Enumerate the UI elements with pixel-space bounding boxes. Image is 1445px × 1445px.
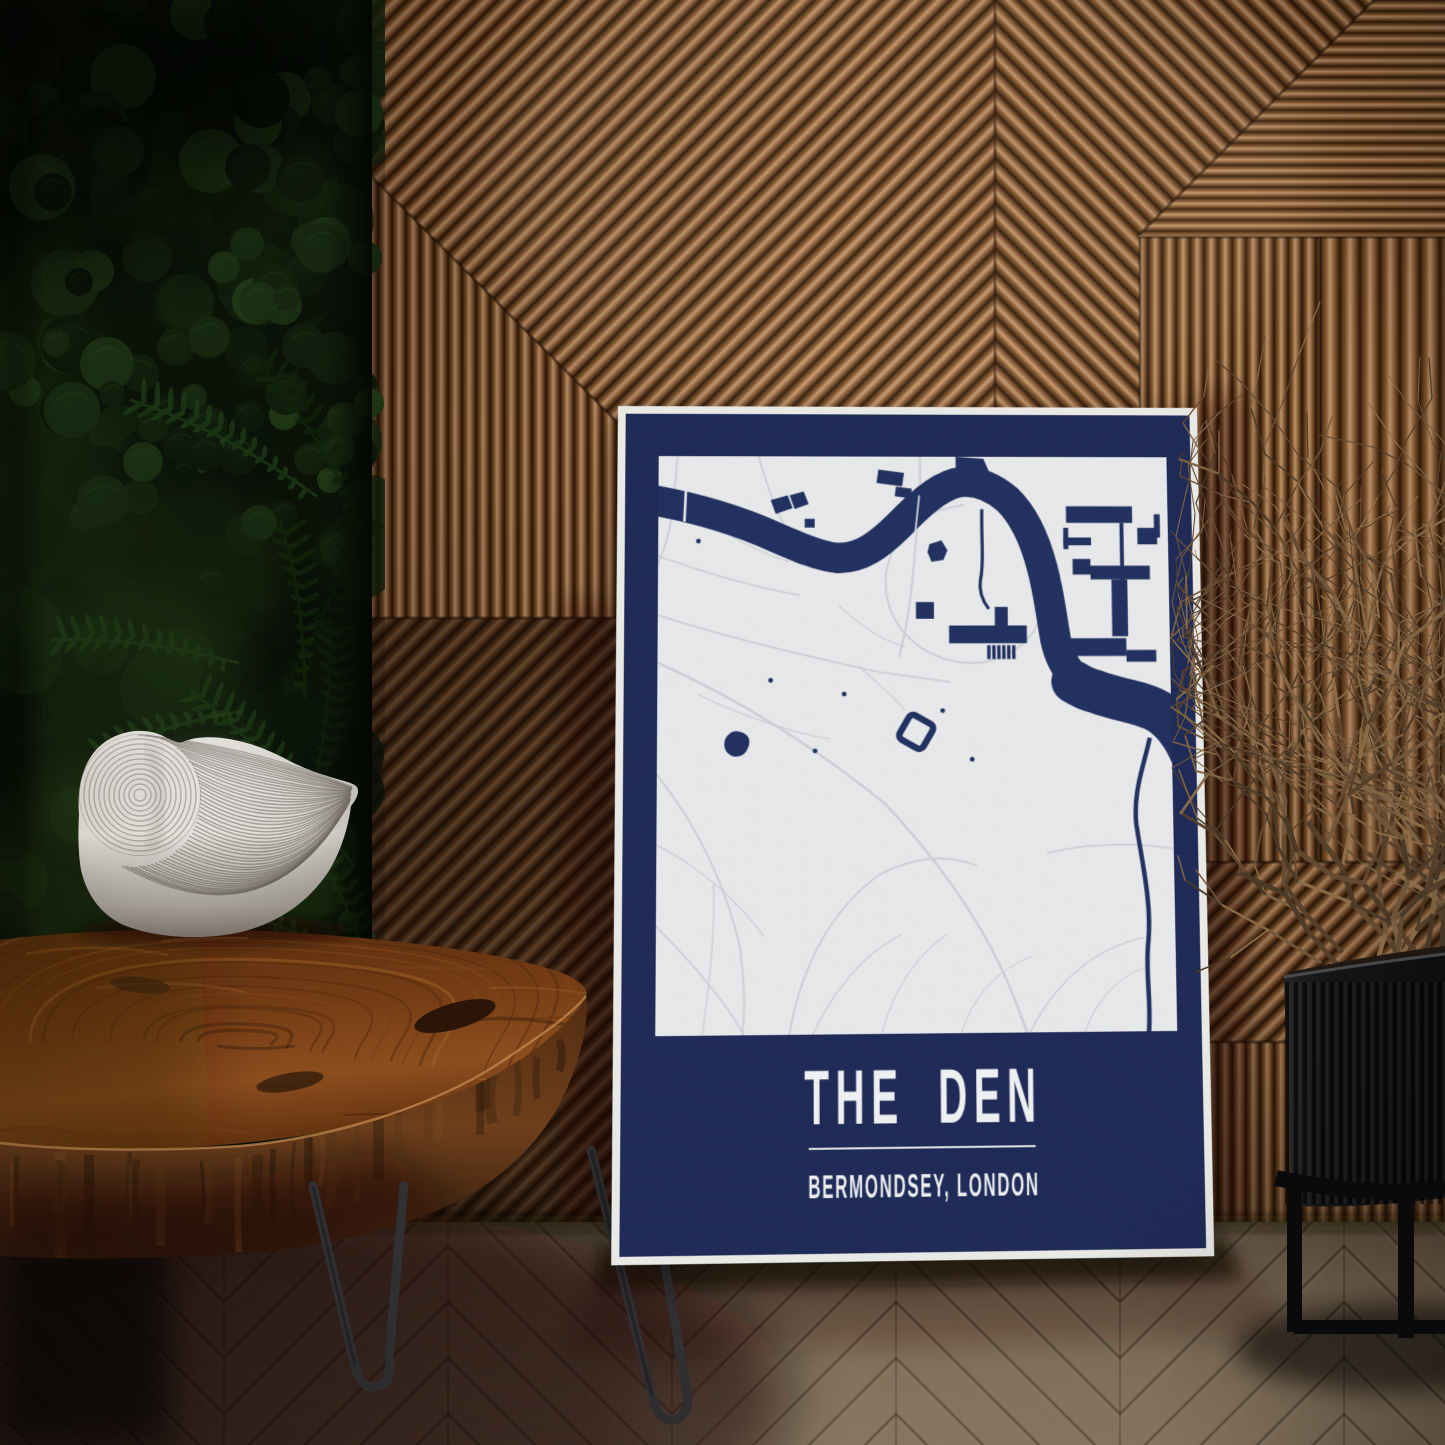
svg-text:THE DEN: THE DEN bbox=[804, 1054, 1043, 1142]
svg-text:BERMONDSEY, LONDON: BERMONDSEY, LONDON bbox=[808, 1167, 1040, 1207]
